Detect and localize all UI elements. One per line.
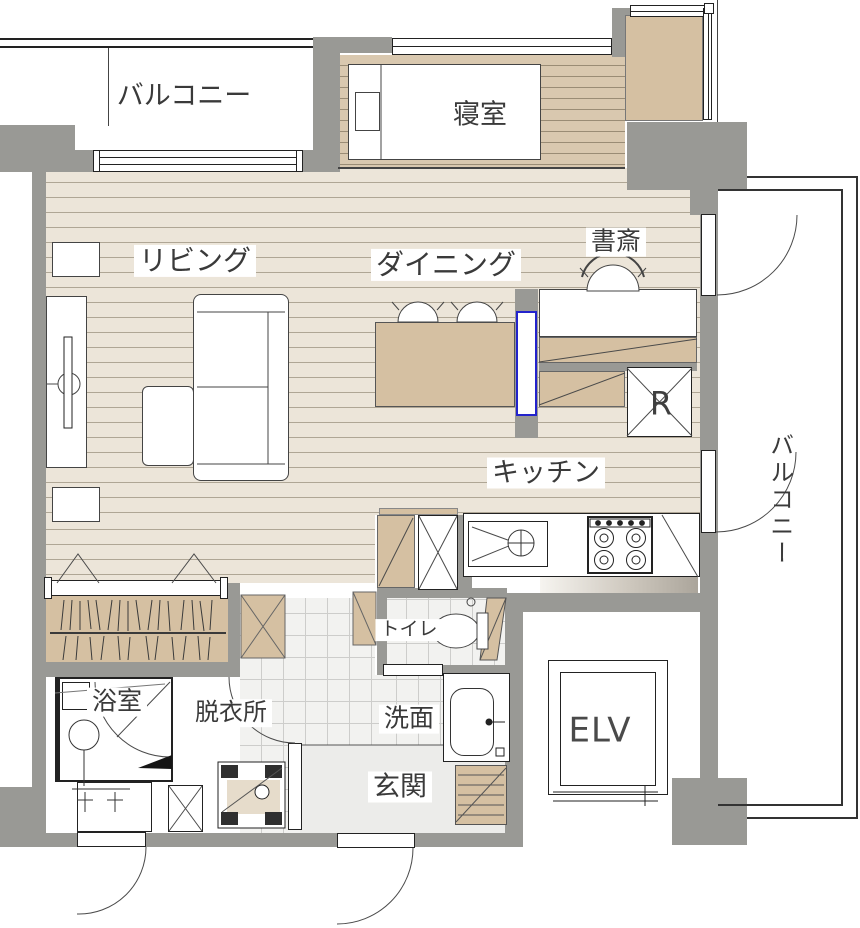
parapet-line bbox=[856, 176, 858, 819]
living-floor-lower bbox=[46, 515, 375, 583]
parapet-line bbox=[841, 189, 843, 806]
exterior-door-left bbox=[77, 832, 146, 847]
bath-plumbing-box bbox=[77, 782, 152, 832]
room-label-bedroom: 寝室 bbox=[453, 99, 507, 130]
parapet-line bbox=[747, 817, 858, 819]
wall bbox=[0, 125, 75, 172]
kitchen-cabinet-top-strip bbox=[379, 508, 458, 515]
wall bbox=[313, 37, 340, 172]
living-balcony-window bbox=[98, 150, 300, 172]
study-counter-low bbox=[539, 371, 625, 407]
shoe-cabinet bbox=[455, 765, 507, 825]
wall bbox=[32, 172, 46, 847]
kitchen-balcony-door bbox=[701, 450, 716, 533]
kitchen-sink-unit bbox=[468, 521, 548, 567]
room-label-bathroom: 浴室 bbox=[87, 688, 147, 717]
wall bbox=[690, 190, 718, 215]
wall bbox=[507, 593, 718, 612]
window-cap bbox=[296, 150, 303, 172]
study-balcony-door bbox=[701, 214, 716, 296]
room-label-balcony-right: バルコニー bbox=[765, 433, 793, 568]
door-arc bbox=[77, 847, 146, 914]
room-label-elevator: ELV bbox=[569, 711, 632, 750]
ottoman bbox=[142, 386, 194, 466]
meter-box bbox=[168, 785, 203, 832]
wash-basin-bowl bbox=[450, 688, 494, 756]
window-cap bbox=[93, 150, 100, 172]
room-label-study: 書斎 bbox=[586, 228, 646, 257]
kitchen-cabinet-x bbox=[418, 515, 458, 590]
window-cap bbox=[704, 3, 714, 14]
study-counter bbox=[539, 337, 697, 363]
alcove-window-side bbox=[703, 8, 712, 120]
bathroom-counter bbox=[62, 682, 90, 710]
building-outline-line bbox=[717, 0, 718, 125]
dining-table bbox=[375, 322, 515, 407]
kitchen-counter-edge bbox=[540, 577, 698, 593]
bedroom-window bbox=[392, 38, 612, 55]
kitchen-cabinet bbox=[377, 515, 415, 588]
wall bbox=[627, 122, 747, 190]
parapet-line bbox=[747, 176, 858, 178]
parapet-line bbox=[718, 189, 843, 191]
wall bbox=[46, 660, 240, 677]
tv-board bbox=[46, 296, 87, 468]
bedroom-boundary-line bbox=[338, 167, 625, 169]
wall-shelf bbox=[52, 487, 100, 522]
room-label-living: リビング bbox=[134, 245, 256, 277]
room-label-washroom: 洗面 bbox=[379, 705, 439, 734]
study-desk bbox=[539, 289, 697, 337]
sofa bbox=[193, 294, 289, 481]
room-label-dining: ダイニング bbox=[371, 249, 521, 281]
closet-folding-door bbox=[48, 580, 224, 596]
entrance-door bbox=[337, 833, 415, 848]
closet-floor bbox=[46, 596, 228, 662]
bedroom-closet-alcove bbox=[625, 15, 703, 121]
room-label-balcony-top: バルコニー bbox=[117, 80, 251, 111]
room-label-dressing-room: 脱衣所 bbox=[190, 699, 272, 727]
room-label-refrigerator: R bbox=[650, 386, 672, 423]
wall bbox=[313, 37, 392, 53]
room-label-kitchen: キッチン bbox=[487, 457, 605, 488]
toilet-sliding-door bbox=[383, 664, 443, 676]
balcony-divider-line bbox=[108, 48, 109, 126]
room-label-toilet: トイレ bbox=[375, 619, 442, 641]
study-counter-opening bbox=[516, 311, 537, 416]
door-cap bbox=[44, 577, 52, 599]
room-label-entrance: 玄関 bbox=[368, 771, 432, 802]
alcove-window-top bbox=[630, 5, 707, 17]
door-cap bbox=[220, 577, 228, 599]
door-arc bbox=[337, 848, 413, 924]
wall bbox=[672, 778, 747, 845]
balcony-railing bbox=[0, 38, 313, 48]
pillow bbox=[355, 92, 380, 131]
floorplan: バルコニー 寝室 リビング ダイニング 書斎 キッチン バルコニー R トイレ … bbox=[0, 0, 860, 928]
parapet-line bbox=[718, 804, 843, 806]
wall-shelf bbox=[52, 242, 100, 277]
dressing-room-door bbox=[288, 743, 302, 830]
